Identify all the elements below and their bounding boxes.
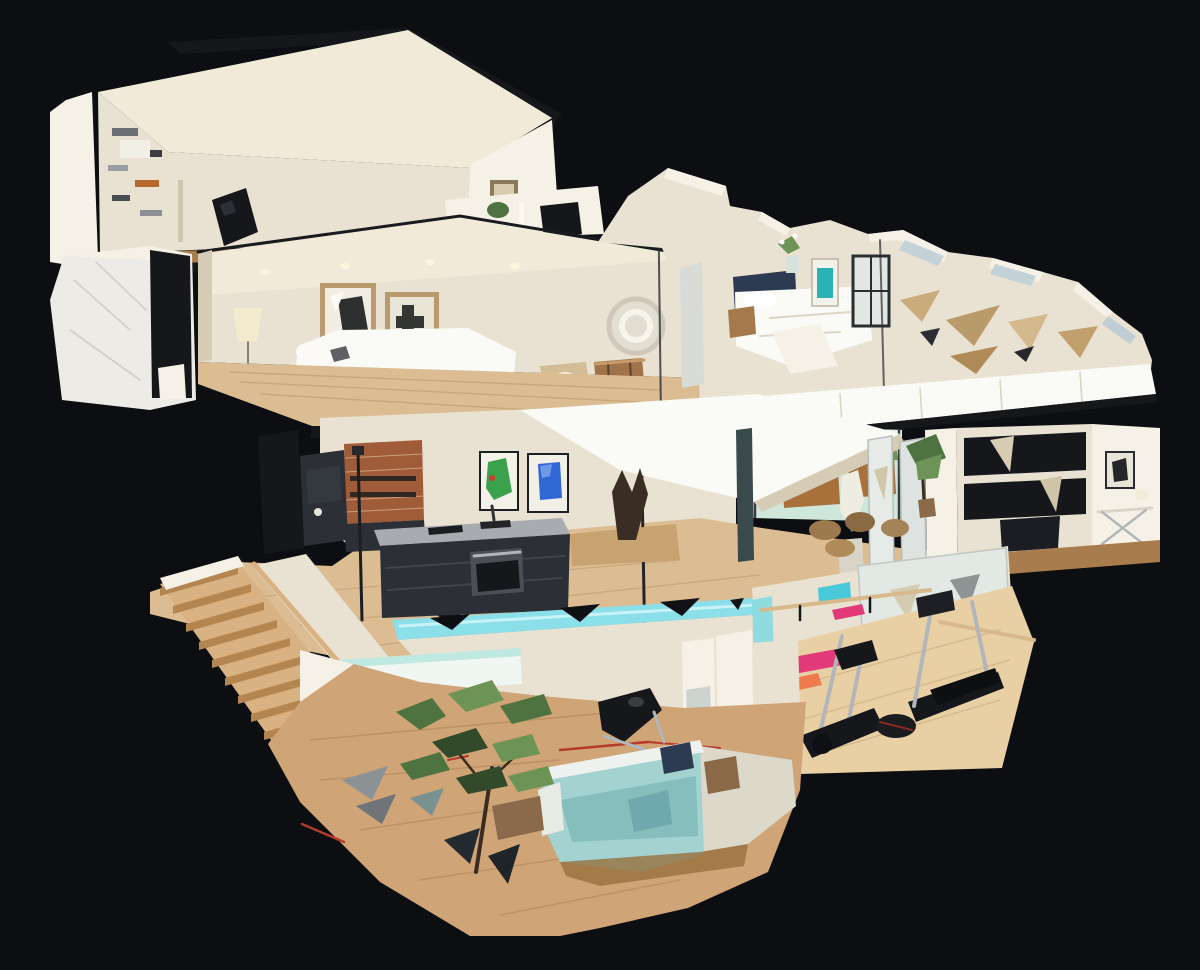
- black-frame-partition: [853, 256, 889, 326]
- cube-lamp: [158, 364, 186, 400]
- round-mirror: [609, 299, 663, 353]
- office-bookshelf: [956, 424, 1092, 560]
- dollhouse-3d-model[interactable]: [0, 0, 1200, 970]
- artwork-green: [480, 452, 518, 510]
- room-marble-bath[interactable]: [50, 246, 196, 410]
- console-table-nook: [1092, 424, 1160, 552]
- oven: [470, 548, 524, 596]
- artwork-teal: [812, 259, 838, 306]
- end-wall: [50, 92, 98, 266]
- artwork-blue: [528, 454, 568, 512]
- dollhouse-viewport[interactable]: [0, 0, 1200, 970]
- nightstand: [728, 306, 756, 338]
- shelf-plant: [487, 202, 509, 218]
- living-left-return: [198, 250, 212, 362]
- gym-bag: [876, 714, 916, 738]
- glass-wardrobe-panel: [680, 262, 704, 388]
- console-lamp: [1136, 490, 1148, 500]
- window-column: [736, 428, 754, 562]
